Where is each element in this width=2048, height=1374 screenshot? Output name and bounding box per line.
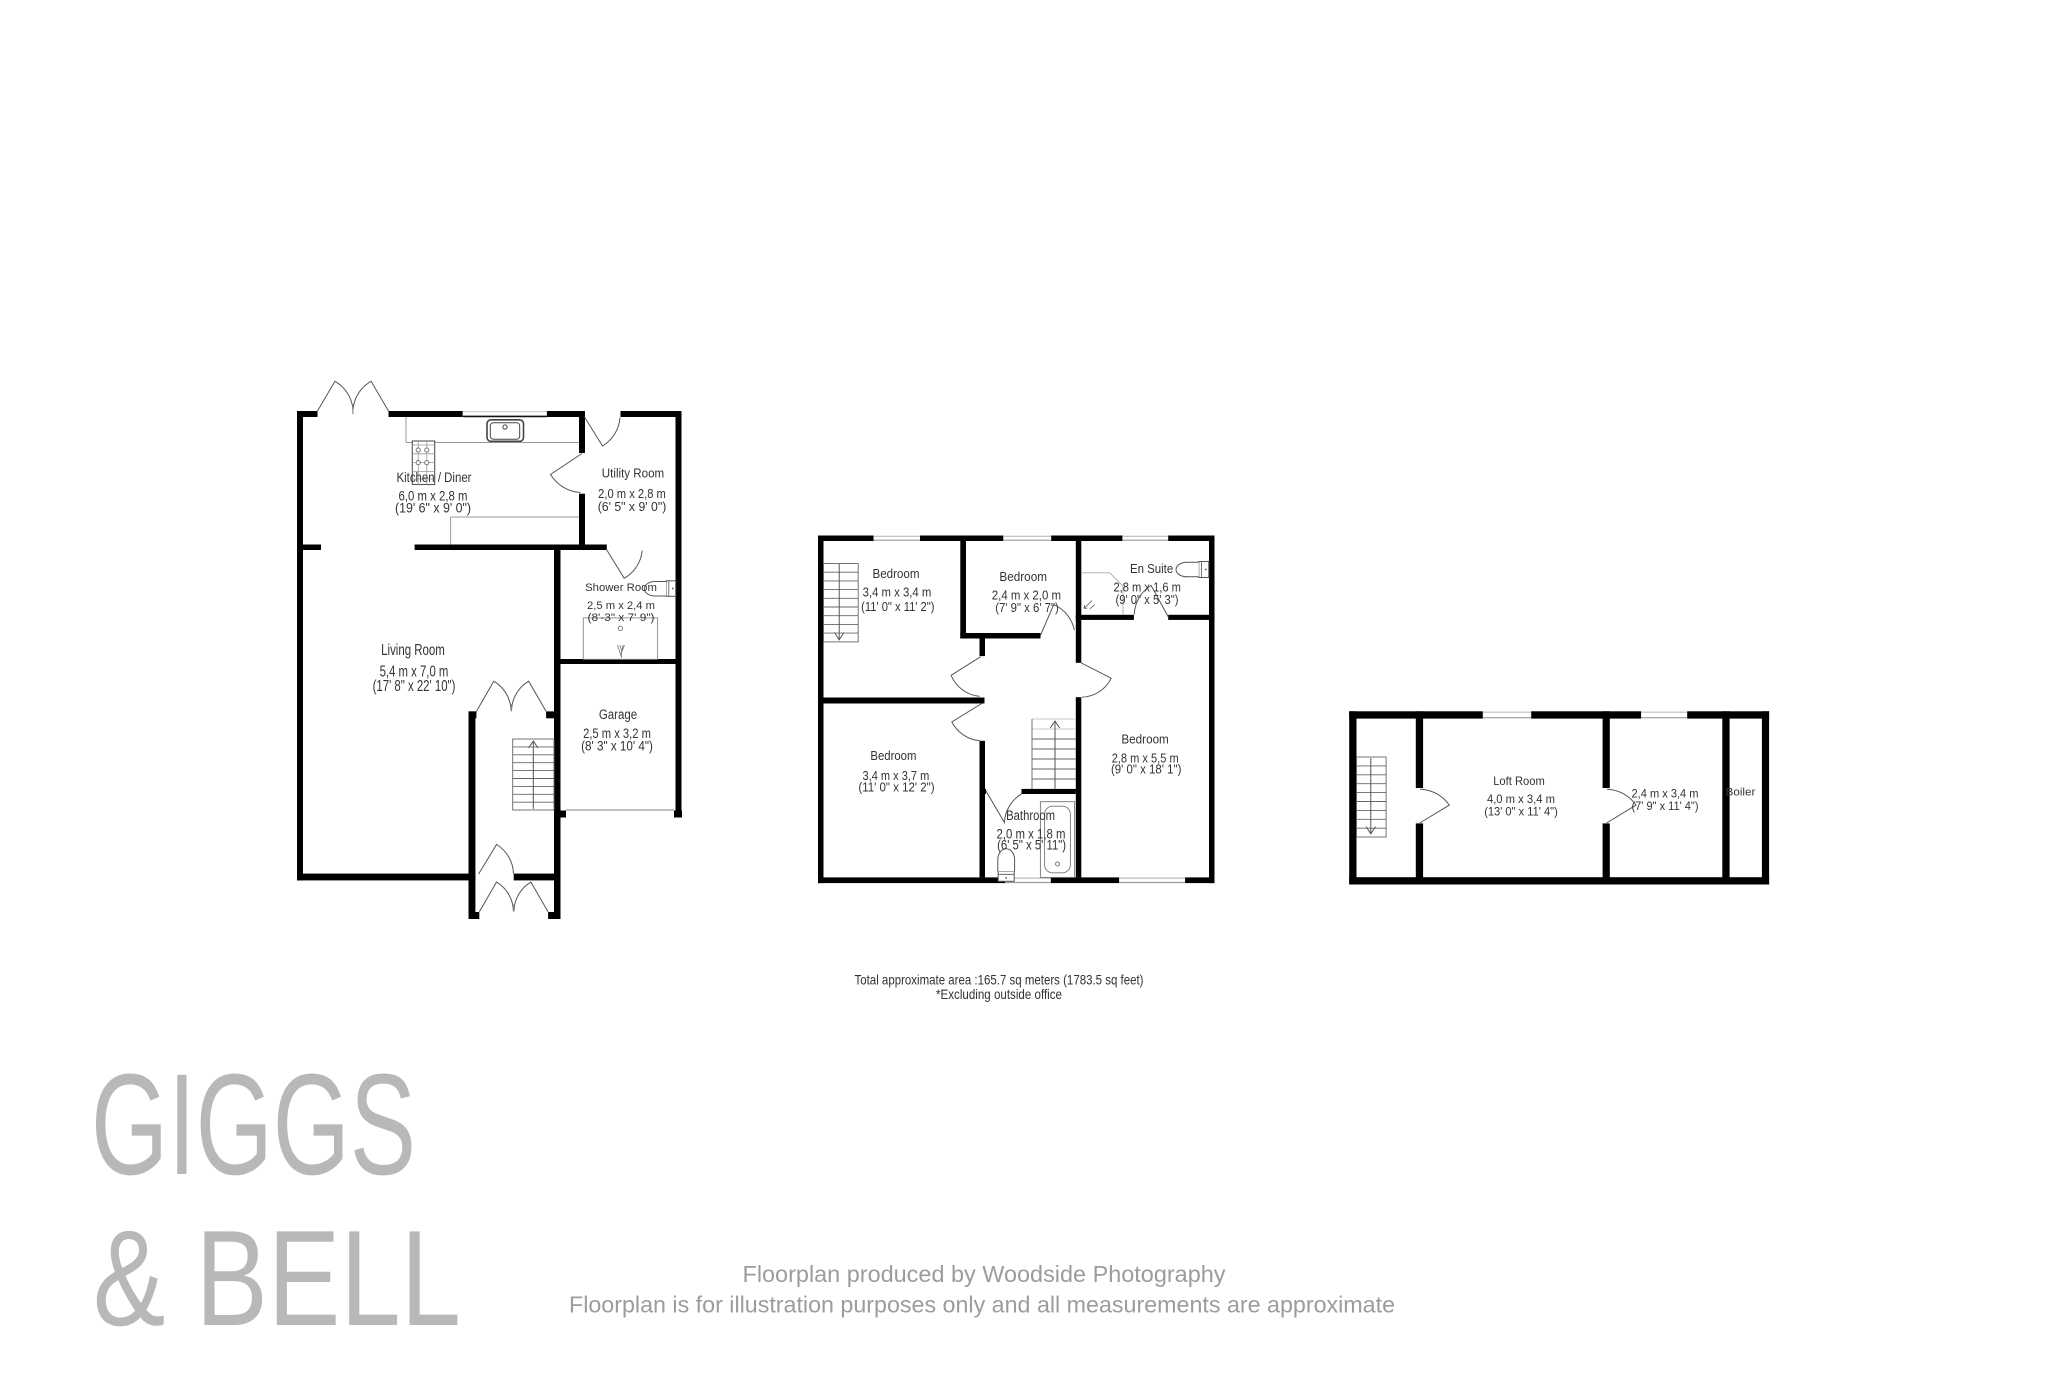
svg-text:(13' 0" x 11' 4"): (13' 0" x 11' 4") — [1484, 805, 1558, 819]
svg-text:(11' 0" x 11' 2"): (11' 0" x 11' 2") — [861, 599, 934, 614]
svg-text:Bedroom: Bedroom — [870, 748, 916, 763]
svg-text:En Suite: En Suite — [1130, 561, 1173, 576]
svg-text:Bathroom: Bathroom — [1006, 808, 1055, 823]
svg-text:Bedroom: Bedroom — [999, 569, 1047, 584]
svg-text:(8' 3" x 10' 4"): (8' 3" x 10' 4") — [581, 738, 653, 753]
svg-text:3,4 m x 3,4 m: 3,4 m x 3,4 m — [863, 584, 932, 599]
svg-text:Floorplan produced by Woodside: Floorplan produced by Woodside Photograp… — [743, 1261, 1227, 1287]
svg-text:(6' 5" x 5' 11"): (6' 5" x 5' 11") — [997, 838, 1066, 853]
svg-text:Living Room: Living Room — [381, 642, 445, 659]
svg-text:GIGGS: GIGGS — [91, 1044, 416, 1205]
svg-text:(11' 0" x 12' 2"): (11' 0" x 12' 2") — [858, 780, 934, 795]
svg-text:Garage: Garage — [599, 707, 637, 722]
svg-text:(9' 0" x 5' 3"): (9' 0" x 5' 3") — [1116, 592, 1179, 607]
svg-text:(9' 0" x 18' 1"): (9' 0" x 18' 1") — [1111, 762, 1182, 777]
svg-text:Utility Room: Utility Room — [602, 466, 664, 480]
svg-text:(6' 5" x 9' 0"): (6' 5" x 9' 0") — [598, 500, 667, 514]
svg-text:Kitchen / Diner: Kitchen / Diner — [397, 469, 472, 485]
svg-text:Bedroom: Bedroom — [1121, 732, 1168, 747]
svg-text:Loft Room: Loft Room — [1493, 774, 1545, 788]
svg-text:(8'-3" x 7' 9"): (8'-3" x 7' 9") — [588, 612, 655, 624]
svg-text:(17' 8" x 22' 10"): (17' 8" x 22' 10") — [373, 678, 456, 695]
svg-text:2,5 m x 2,4 m: 2,5 m x 2,4 m — [587, 600, 655, 612]
svg-text:Bedroom: Bedroom — [873, 566, 920, 581]
svg-text:& BELL: & BELL — [93, 1202, 461, 1354]
svg-text:Floorplan is for illustration: Floorplan is for illustration purposes o… — [569, 1292, 1395, 1318]
svg-text:*Excluding outside office: *Excluding outside office — [936, 986, 1062, 1002]
svg-text:Boiler: Boiler — [1726, 787, 1756, 799]
svg-text:(19' 6" x 9' 0"): (19' 6" x 9' 0") — [395, 500, 471, 516]
svg-text:(7' 9" x 11' 4"): (7' 9" x 11' 4") — [1632, 799, 1699, 813]
svg-text:(7' 9" x 6' 7"): (7' 9" x 6' 7") — [995, 600, 1059, 615]
svg-text:Shower Room: Shower Room — [585, 582, 657, 594]
